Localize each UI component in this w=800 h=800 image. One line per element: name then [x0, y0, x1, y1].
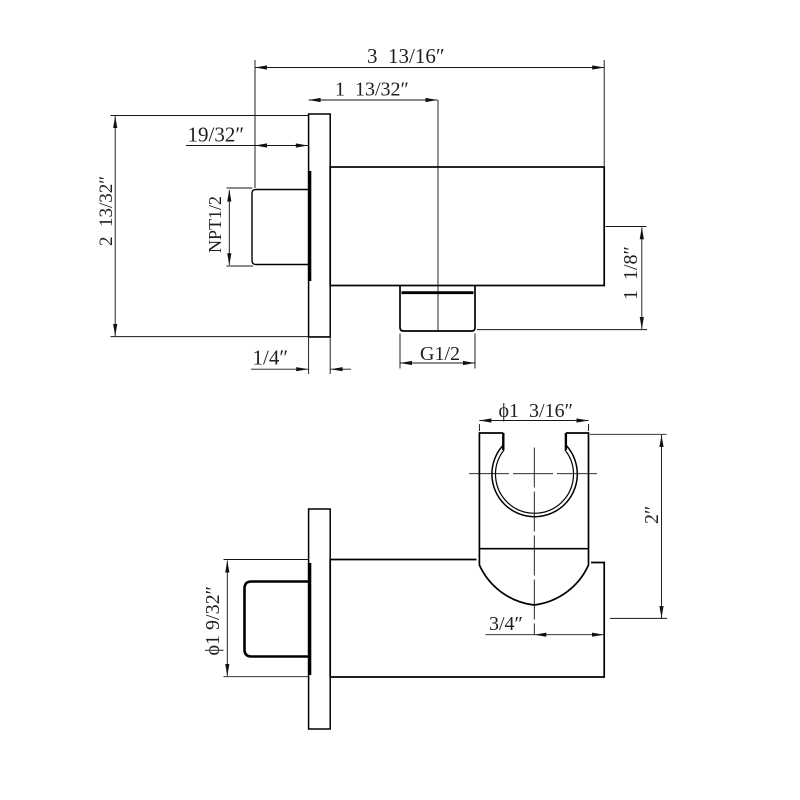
svg-text:2 13/32″: 2 13/32″ — [96, 176, 117, 246]
svg-text:ϕ1 9/32″: ϕ1 9/32″ — [202, 586, 224, 655]
svg-text:19/32″: 19/32″ — [188, 123, 245, 147]
svg-text:G1/2: G1/2 — [420, 343, 460, 365]
svg-text:3 13/16″: 3 13/16″ — [367, 44, 445, 68]
svg-text:NPT1/2: NPT1/2 — [205, 196, 225, 253]
svg-text:ϕ1 3/16″: ϕ1 3/16″ — [499, 400, 573, 422]
svg-text:1 1/8″: 1 1/8″ — [620, 246, 642, 300]
svg-text:1/4″: 1/4″ — [253, 346, 289, 370]
svg-text:3/4″: 3/4″ — [489, 613, 523, 635]
svg-text:2″: 2″ — [641, 506, 663, 524]
svg-text:1 13/32″: 1 13/32″ — [335, 79, 409, 101]
